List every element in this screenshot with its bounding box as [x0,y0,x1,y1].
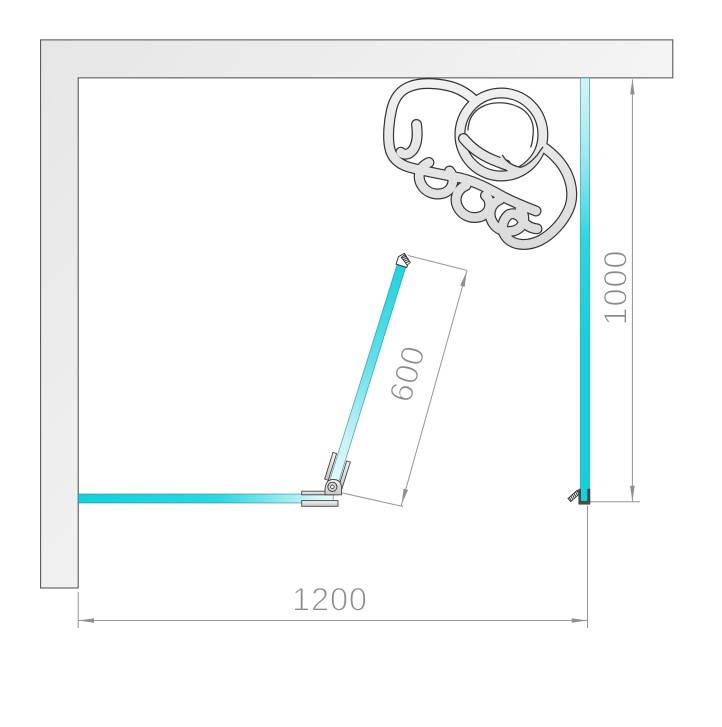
svg-text:1000: 1000 [598,250,634,326]
svg-text:1200: 1200 [292,582,368,618]
svg-text:600: 600 [382,341,432,406]
